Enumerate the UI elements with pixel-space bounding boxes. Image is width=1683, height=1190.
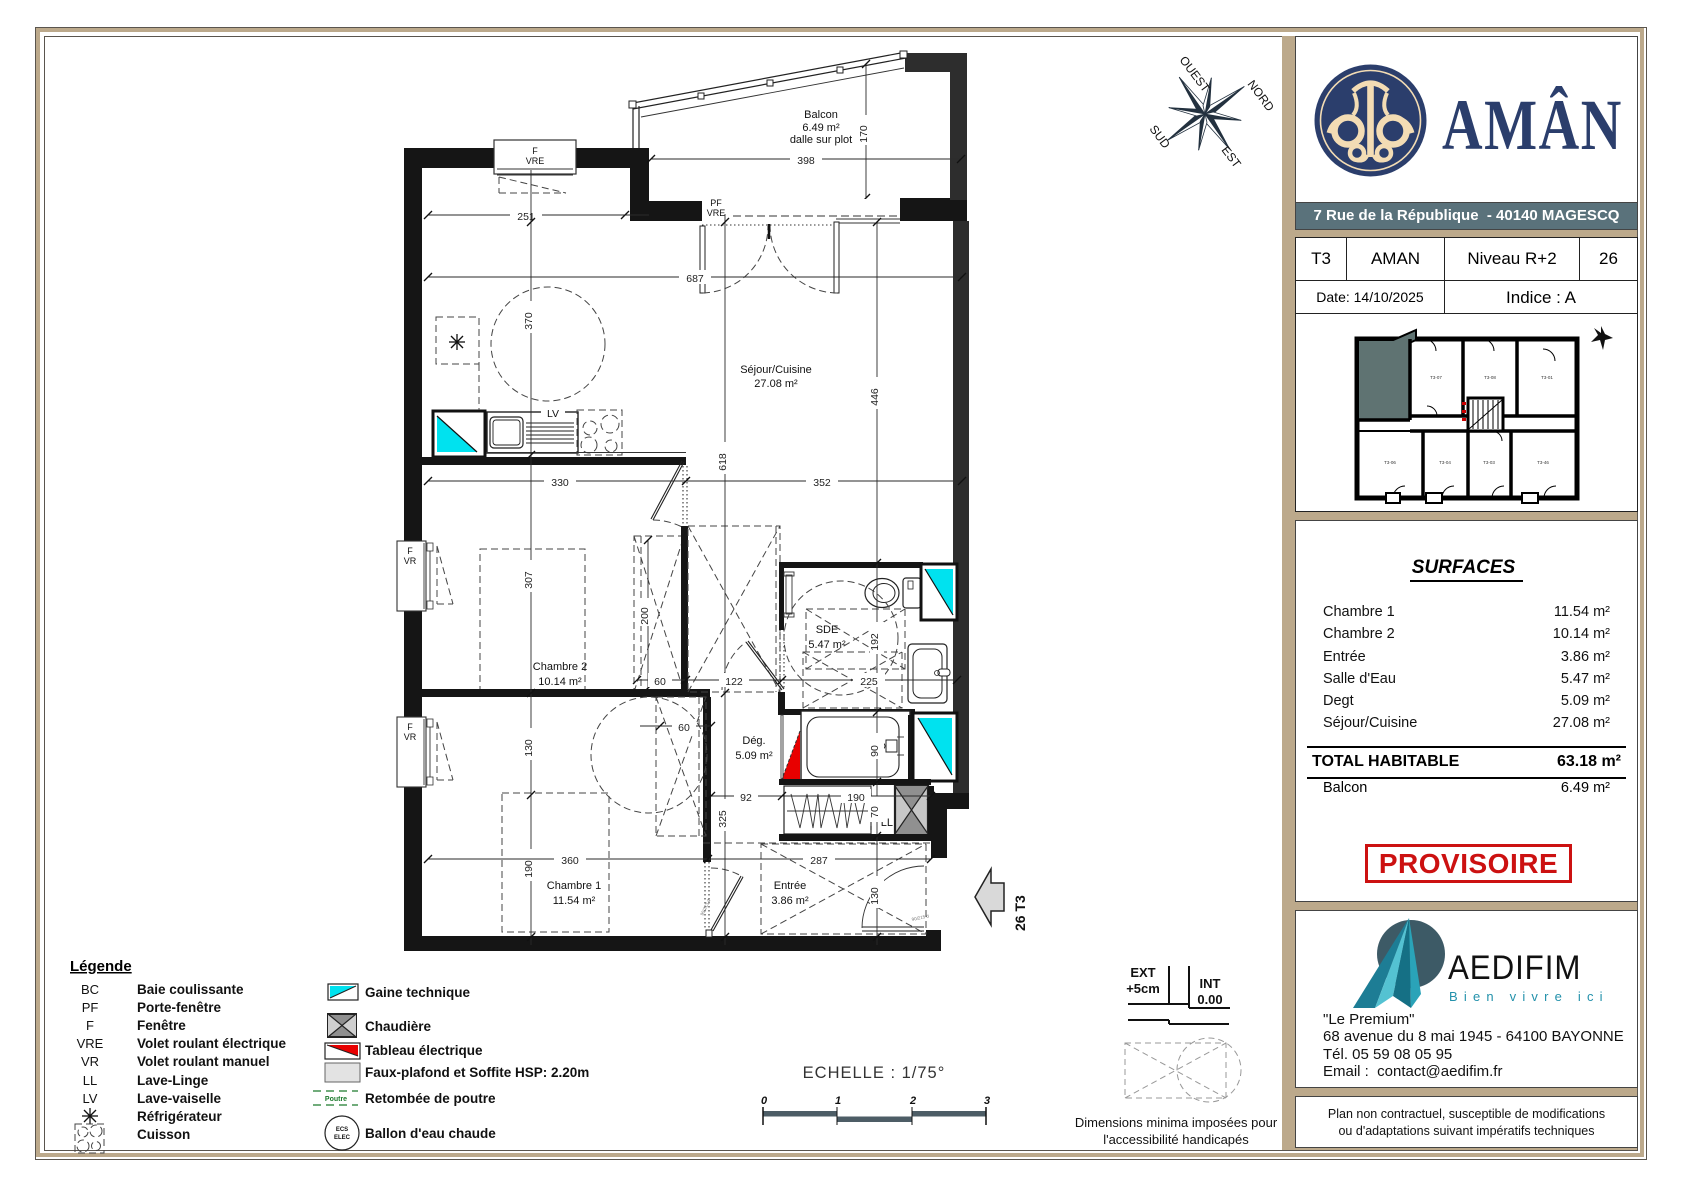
svg-text:VR: VR <box>81 1054 99 1069</box>
svg-text:325: 325 <box>717 810 729 828</box>
svg-text:ELEC: ELEC <box>334 1135 351 1141</box>
svg-text:170: 170 <box>858 125 870 143</box>
svg-text:618: 618 <box>717 453 729 471</box>
svg-text:307: 307 <box>523 571 535 589</box>
svg-text:dalle sur plot: dalle sur plot <box>790 134 852 146</box>
svg-text:60: 60 <box>654 676 666 688</box>
svg-text:287: 287 <box>810 855 828 867</box>
svg-text:OUEST: OUEST <box>1177 53 1213 95</box>
svg-text:130: 130 <box>869 887 881 905</box>
svg-text:352: 352 <box>813 477 831 489</box>
svg-text:LV: LV <box>83 1091 98 1106</box>
svg-text:446: 446 <box>869 388 881 406</box>
svg-text:10.14 m²: 10.14 m² <box>538 676 582 688</box>
svg-text:130: 130 <box>523 739 535 757</box>
svg-text:5.47 m²: 5.47 m² <box>808 639 846 651</box>
svg-text:190: 190 <box>847 792 865 804</box>
svg-text:Gaine technique: Gaine technique <box>365 985 471 1000</box>
svg-text:Lave-vaiselle: Lave-vaiselle <box>137 1091 222 1106</box>
svg-text:90/215 d: 90/215 d <box>911 913 930 922</box>
svg-text:T3-46: T3-46 <box>1537 460 1549 465</box>
svg-text:Chaudière: Chaudière <box>365 1019 432 1034</box>
svg-text:3.86 m²: 3.86 m² <box>771 895 809 907</box>
svg-text:Poutre: Poutre <box>325 1096 347 1103</box>
svg-text:Fenêtre: Fenêtre <box>137 1018 186 1033</box>
svg-text:BC: BC <box>81 982 99 997</box>
svg-text:VR: VR <box>404 556 417 566</box>
svg-text:92: 92 <box>740 792 752 804</box>
svg-text:F: F <box>86 1018 94 1033</box>
svg-text:VRE: VRE <box>707 208 726 218</box>
svg-text:T3-08: T3-08 <box>1484 375 1496 380</box>
svg-text:T3-03: T3-03 <box>1483 460 1495 465</box>
svg-text:Réfrigérateur: Réfrigérateur <box>137 1109 223 1124</box>
svg-text:PF: PF <box>82 1000 99 1015</box>
svg-text:Balcon: Balcon <box>804 109 838 121</box>
svg-text:225: 225 <box>860 676 878 688</box>
svg-text:F: F <box>407 546 413 556</box>
svg-text:Chambre 1: Chambre 1 <box>547 880 601 892</box>
svg-text:0: 0 <box>761 1095 768 1107</box>
svg-text:360: 360 <box>561 855 579 867</box>
svg-text:70: 70 <box>869 806 881 818</box>
svg-text:5.09 m²: 5.09 m² <box>735 750 773 762</box>
svg-text:Séjour/Cuisine: Séjour/Cuisine <box>740 364 812 376</box>
svg-text:ECS: ECS <box>336 1127 348 1133</box>
svg-text:2: 2 <box>909 1095 916 1107</box>
svg-text:l'accessibilité handicapés: l'accessibilité handicapés <box>1103 1132 1249 1147</box>
svg-text:200: 200 <box>639 607 651 625</box>
svg-text:Ballon d'eau chaude: Ballon d'eau chaude <box>365 1126 496 1141</box>
svg-text:687: 687 <box>686 273 704 285</box>
svg-text:+5cm: +5cm <box>1126 981 1160 996</box>
svg-text:T3-04: T3-04 <box>1439 460 1451 465</box>
svg-text:Volet roulant électrique: Volet roulant électrique <box>137 1036 287 1051</box>
svg-text:Chambre 2: Chambre 2 <box>533 661 587 673</box>
svg-text:T3-06: T3-06 <box>1384 460 1396 465</box>
svg-text:60: 60 <box>678 722 690 734</box>
svg-text:Retombée de poutre: Retombée de poutre <box>365 1091 496 1106</box>
svg-text:Cuisson: Cuisson <box>137 1127 190 1142</box>
svg-text:T3-07: T3-07 <box>1430 375 1442 380</box>
svg-text:1: 1 <box>835 1095 841 1107</box>
svg-text:Entrée: Entrée <box>774 880 806 892</box>
svg-text:EXT: EXT <box>1130 965 1155 980</box>
svg-text:LV: LV <box>547 408 559 420</box>
svg-text:PF: PF <box>710 198 722 208</box>
svg-text:VRE: VRE <box>77 1036 104 1051</box>
svg-text:Dimensions minima imposées pou: Dimensions minima imposées pour <box>1075 1115 1278 1130</box>
svg-text:3: 3 <box>984 1095 990 1107</box>
svg-text:VRE: VRE <box>526 156 545 166</box>
svg-text:370: 370 <box>523 312 535 330</box>
svg-text:INT: INT <box>1200 976 1221 991</box>
svg-text:122: 122 <box>725 676 743 688</box>
svg-text:SUD: SUD <box>1147 122 1174 151</box>
svg-text:Volet roulant manuel: Volet roulant manuel <box>137 1054 270 1069</box>
svg-text:LL: LL <box>83 1073 97 1088</box>
svg-text:SDE: SDE <box>816 624 839 636</box>
svg-text:Faux-plafond et Soffite HSP: 2: Faux-plafond et Soffite HSP: 2.20m <box>365 1065 589 1080</box>
svg-text:90/213 d: 90/213 d <box>699 898 711 916</box>
svg-text:330: 330 <box>551 477 569 489</box>
svg-text:0.00: 0.00 <box>1197 992 1222 1007</box>
svg-text:26 T3: 26 T3 <box>1012 895 1028 931</box>
svg-text:Baie coulissante: Baie coulissante <box>137 982 244 997</box>
svg-text:F: F <box>407 722 413 732</box>
svg-text:6.49 m²: 6.49 m² <box>802 122 840 134</box>
svg-text:190: 190 <box>523 860 535 878</box>
svg-text:Dég.: Dég. <box>742 735 765 747</box>
svg-text:Légende: Légende <box>70 958 132 975</box>
svg-text:398: 398 <box>797 155 815 167</box>
svg-text:EST: EST <box>1219 143 1245 171</box>
svg-text:90: 90 <box>869 745 881 757</box>
svg-text:Lave-Linge: Lave-Linge <box>137 1073 209 1088</box>
svg-text:NORD: NORD <box>1245 77 1278 114</box>
svg-text:VR: VR <box>404 732 417 742</box>
svg-text:ECHELLE : 1/75°: ECHELLE : 1/75° <box>803 1064 946 1082</box>
svg-text:27.08 m²: 27.08 m² <box>754 378 798 390</box>
svg-text:Porte-fenêtre: Porte-fenêtre <box>137 1000 222 1015</box>
svg-text:T3-01: T3-01 <box>1541 375 1553 380</box>
svg-text:192: 192 <box>869 633 881 651</box>
svg-text:F: F <box>532 146 538 156</box>
svg-text:Tableau électrique: Tableau électrique <box>365 1043 483 1058</box>
svg-text:11.54 m²: 11.54 m² <box>553 895 596 907</box>
